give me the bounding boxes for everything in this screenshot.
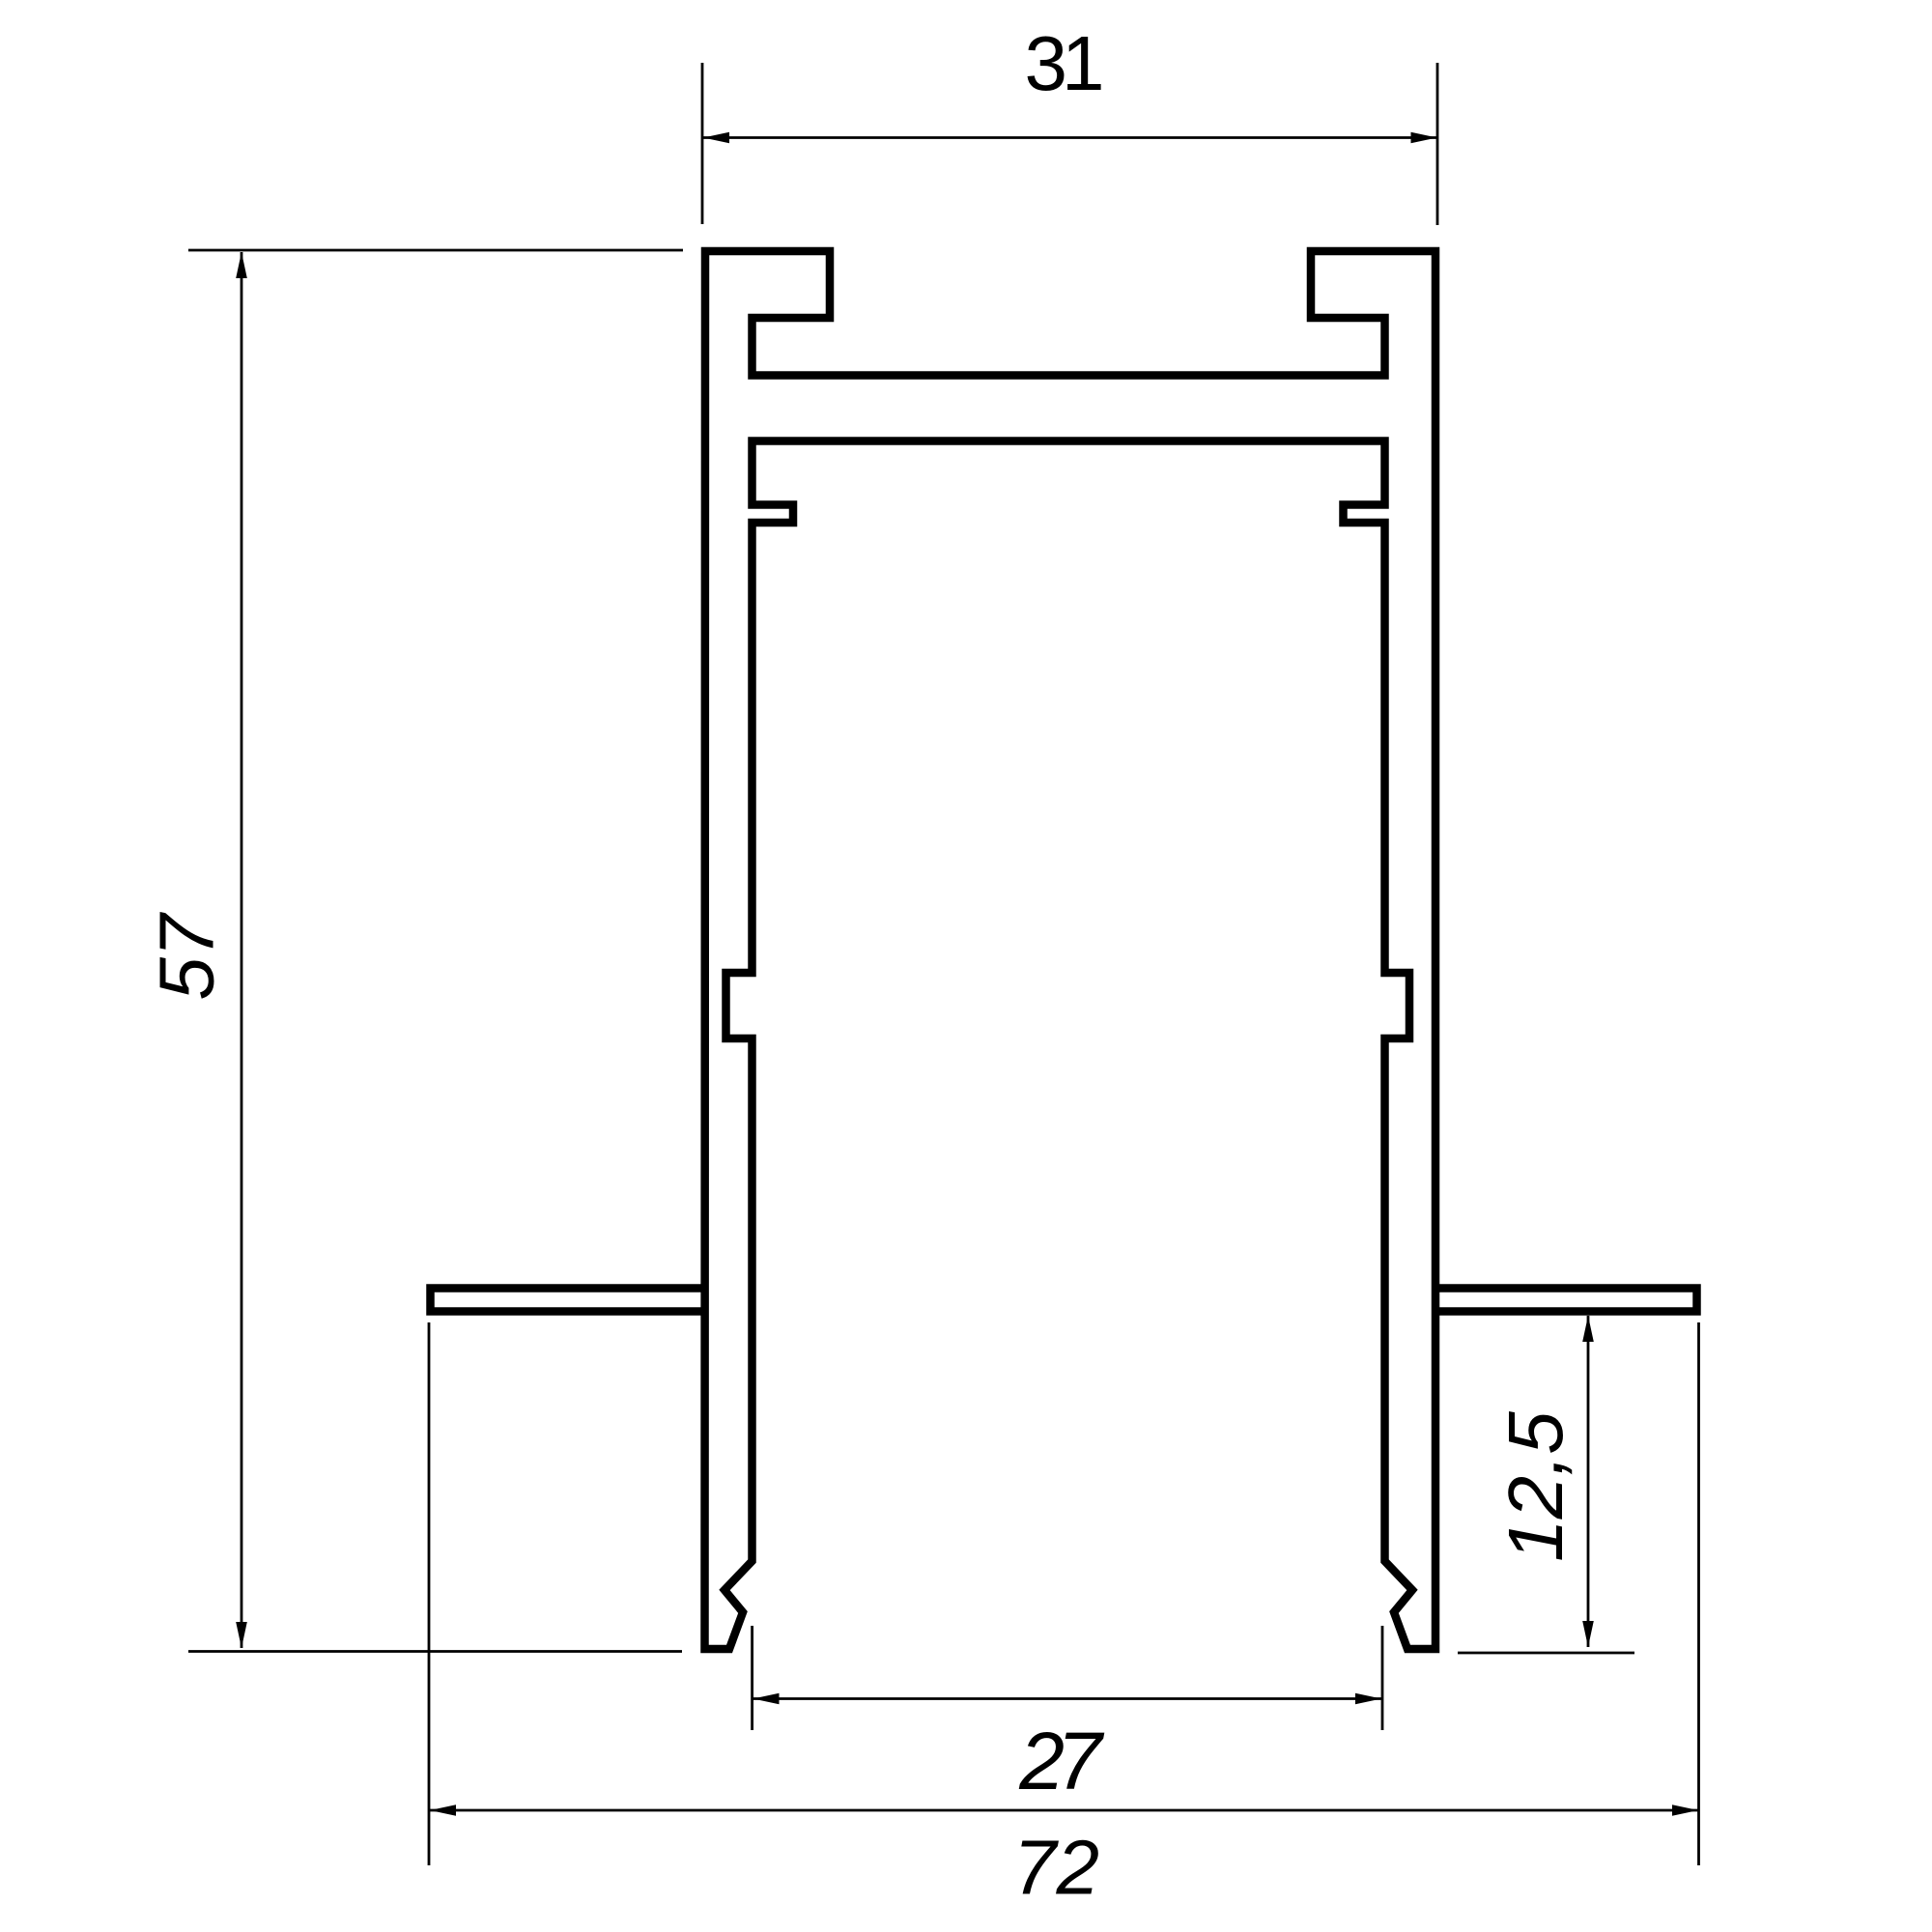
svg-text:27: 27 [1018,1716,1105,1806]
svg-text:72: 72 [1013,1825,1099,1911]
svg-text:12,5: 12,5 [1492,1411,1578,1562]
svg-text:31: 31 [1025,20,1101,106]
svg-text:57: 57 [144,912,230,1000]
